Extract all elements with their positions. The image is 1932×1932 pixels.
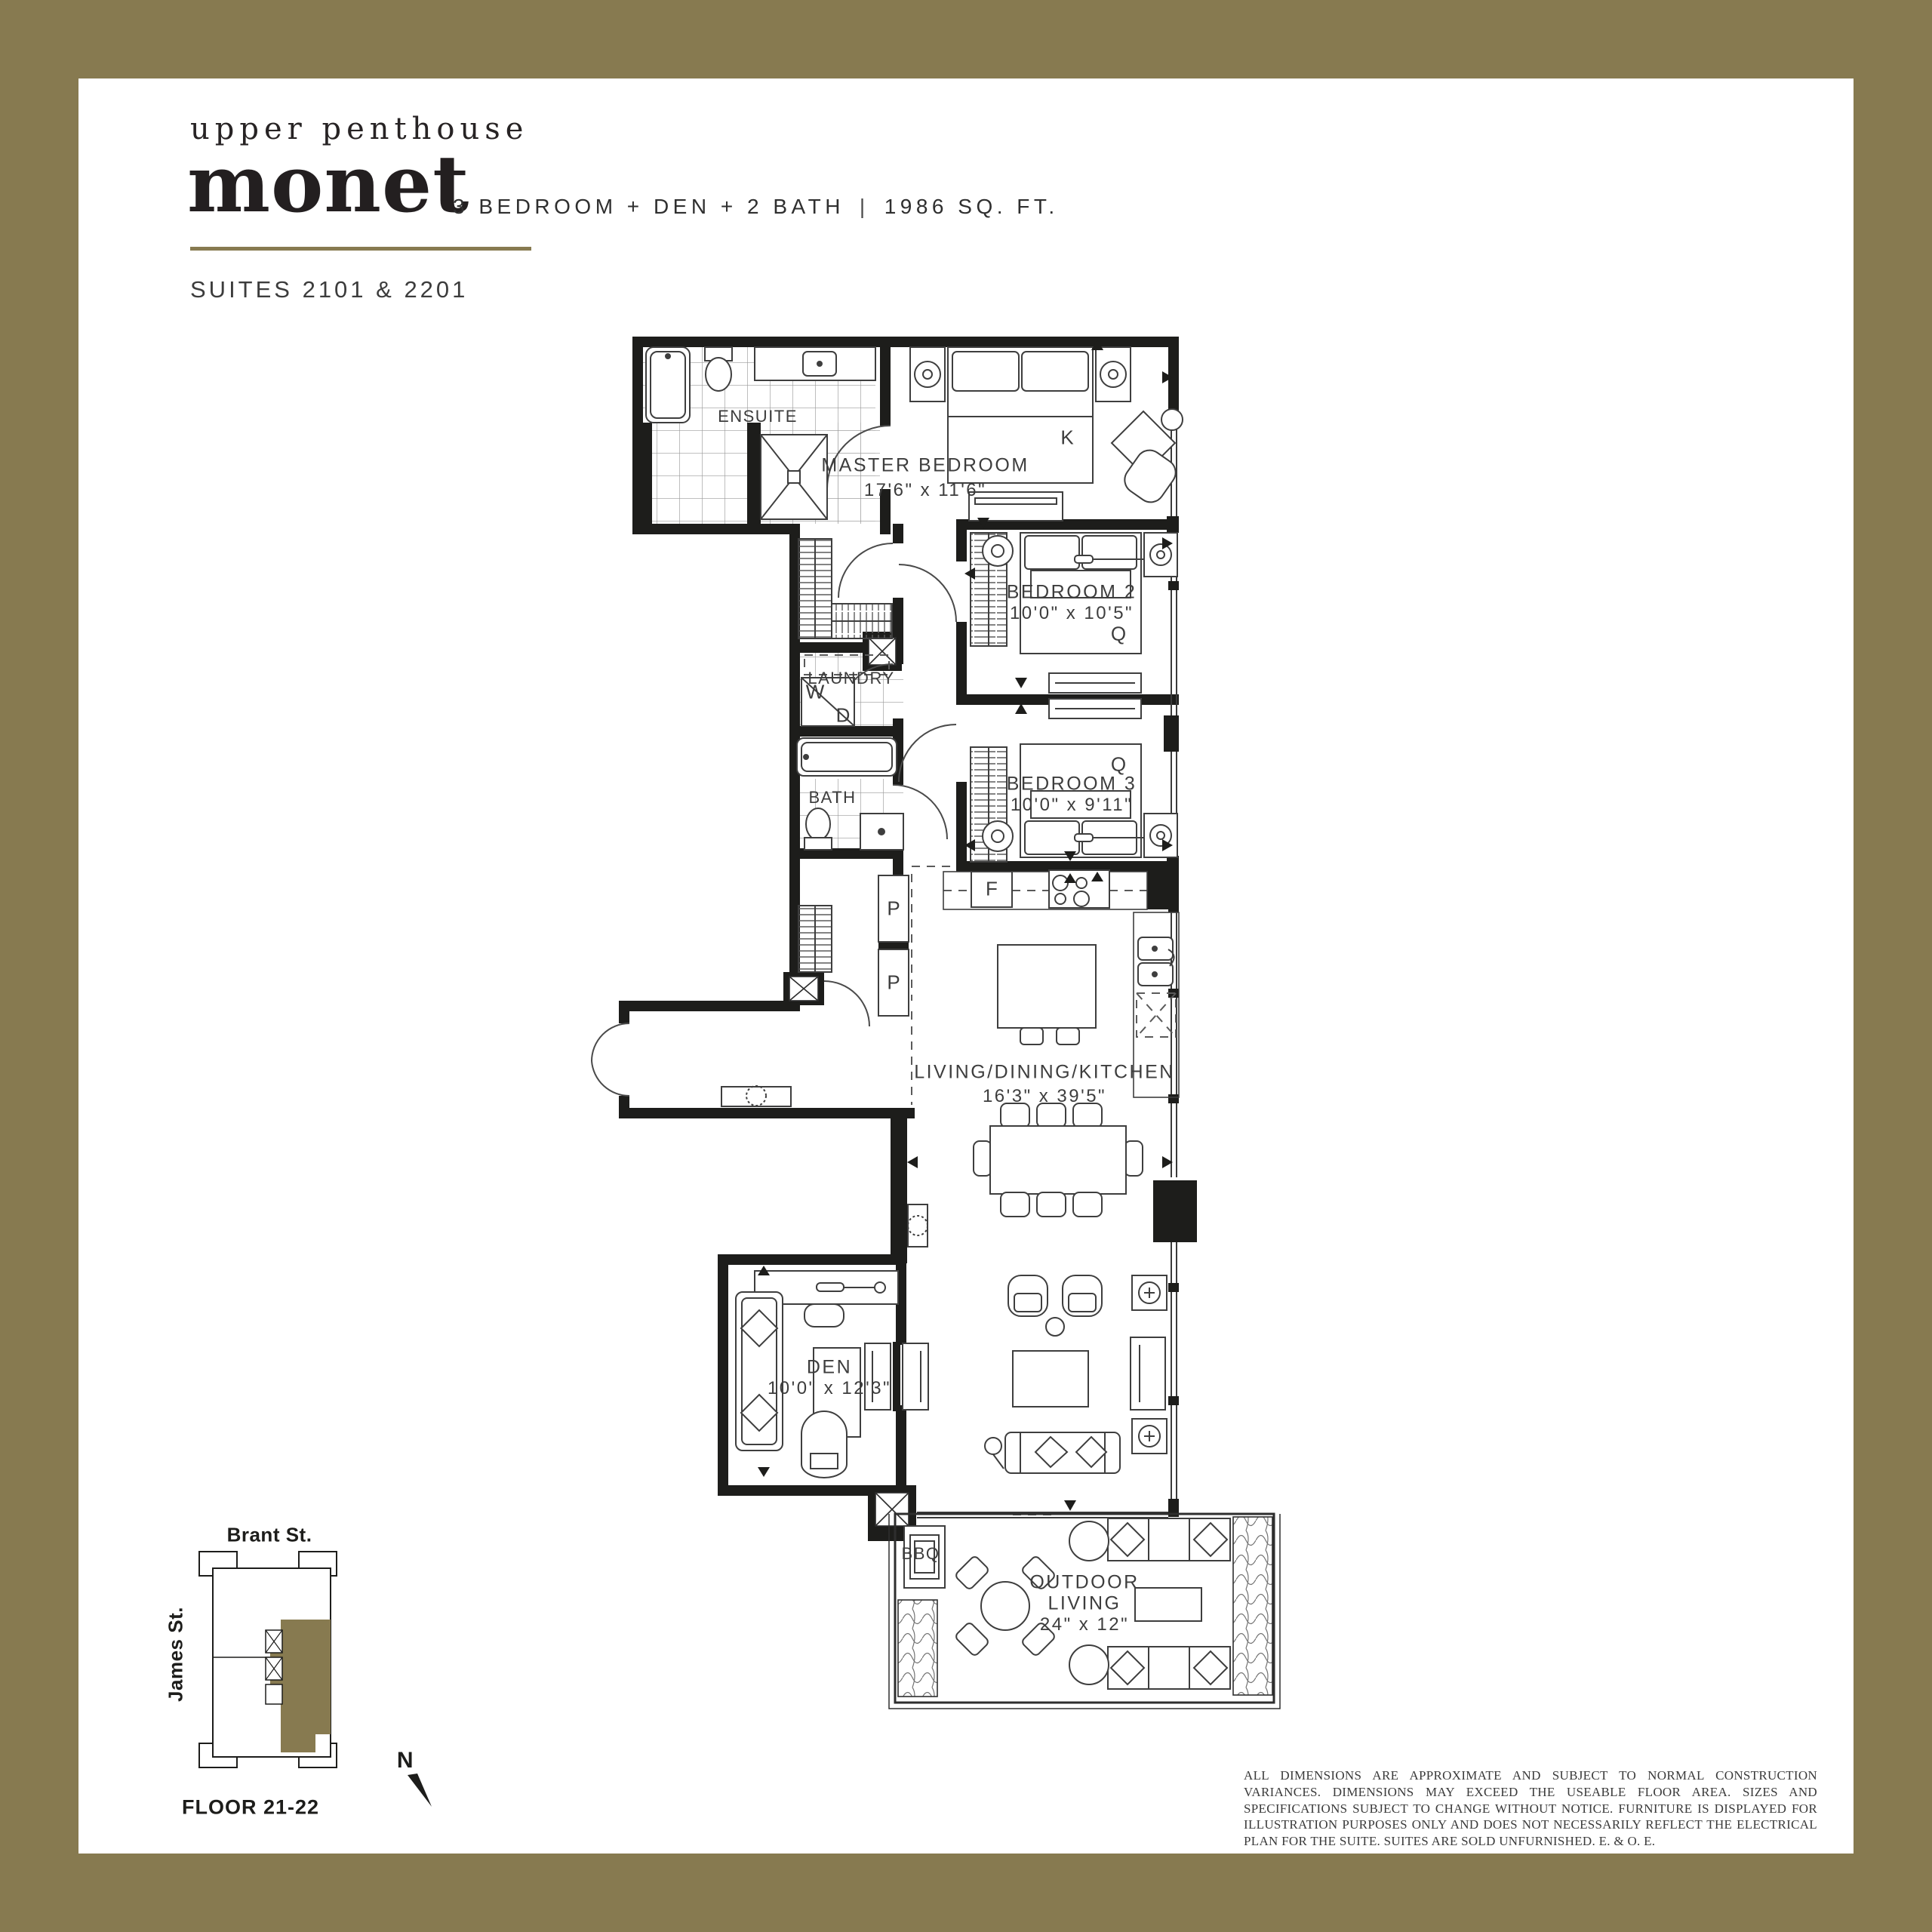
den-sofa-icon [736,1292,783,1451]
floor-range-label: FLOOR 21-22 [182,1796,319,1820]
room-label-bath: BATH [808,788,856,808]
fridge-label: F [986,878,998,901]
hall-closet-icon [798,539,892,638]
north-arrow-icon [408,1774,432,1807]
living-sofa-icon [985,1432,1120,1473]
room-dims-master: 17'6" x 11'6" [864,480,986,501]
living-chairs-icon [1008,1275,1102,1336]
tv-console-icon [1131,1337,1165,1410]
coffee-table-icon [1013,1351,1088,1407]
street-label-left: James St. [165,1607,188,1702]
page-title: monet [187,145,469,223]
room-label-living: LIVING/DINING/KITCHEN [914,1062,1175,1084]
brochure-page: upper penthouse monet 3 BEDROOM + DEN + … [0,0,1932,1932]
room-label-ensuite: ENSUITE [718,407,798,426]
kitchen-island-icon [998,945,1096,1044]
dryer-label: D [836,704,851,728]
bed-size-master: K [1060,426,1073,450]
room-dims-outdoor: 24" x 12" [1040,1614,1129,1635]
suites-label: SUITES 2101 & 2201 [190,276,468,303]
bed-size-bedroom2: Q [1111,623,1126,646]
bathtub-icon [646,347,690,423]
pantry-label-upper: P [887,897,900,921]
room-dims-bedroom3: 10'0" x 9'11" [1011,795,1133,816]
foyer-console-icon [721,1086,791,1106]
room-label-outdoor-1: OUTDOOR [1029,1572,1139,1594]
den-armchair-icon [801,1411,847,1478]
room-label-den: DEN [807,1357,852,1379]
area-text: 1986 SQ. FT. [884,195,1059,219]
room-dims-bedroom2: 10'0" x 10'5" [1010,603,1134,624]
disclaimer-text: ALL DIMENSIONS ARE APPROXIMATE AND SUBJE… [1244,1767,1817,1850]
spec-line: 3 BEDROOM + DEN + 2 BATH | 1986 SQ. FT. [453,195,1059,219]
key-plan [199,1552,337,1767]
room-label-bedroom2: BEDROOM 2 [1007,582,1137,604]
spec-separator: | [860,195,869,219]
pantry-label-lower: P [887,971,900,995]
gold-rule [190,247,531,251]
patio-coffee-table-icon [1135,1588,1201,1621]
room-dims-living: 16'3" x 39'5" [983,1086,1106,1107]
street-label-top: Brant St. [227,1524,312,1547]
room-label-outdoor-2: LIVING [1048,1593,1121,1615]
room-label-master: MASTER BEDROOM [821,455,1029,477]
patio-table-icon [955,1555,1057,1657]
shower-icon [761,435,827,519]
foyer-closet-icon [798,906,832,972]
hall-console-icon [908,1204,928,1247]
north-label: N [397,1748,414,1774]
vanity-icon [755,347,875,380]
room-label-bedroom3: BEDROOM 3 [1007,774,1137,795]
bbq-label: BBQ [902,1544,940,1564]
washer-label: W [806,681,825,704]
bed-size-bedroom3: Q [1111,753,1126,777]
toilet-icon [705,347,732,391]
spec-text: 3 BEDROOM + DEN + 2 BATH [453,195,844,219]
room-dims-den: 10'0" x 12'3" [768,1378,891,1399]
dining-table-icon [974,1103,1143,1217]
